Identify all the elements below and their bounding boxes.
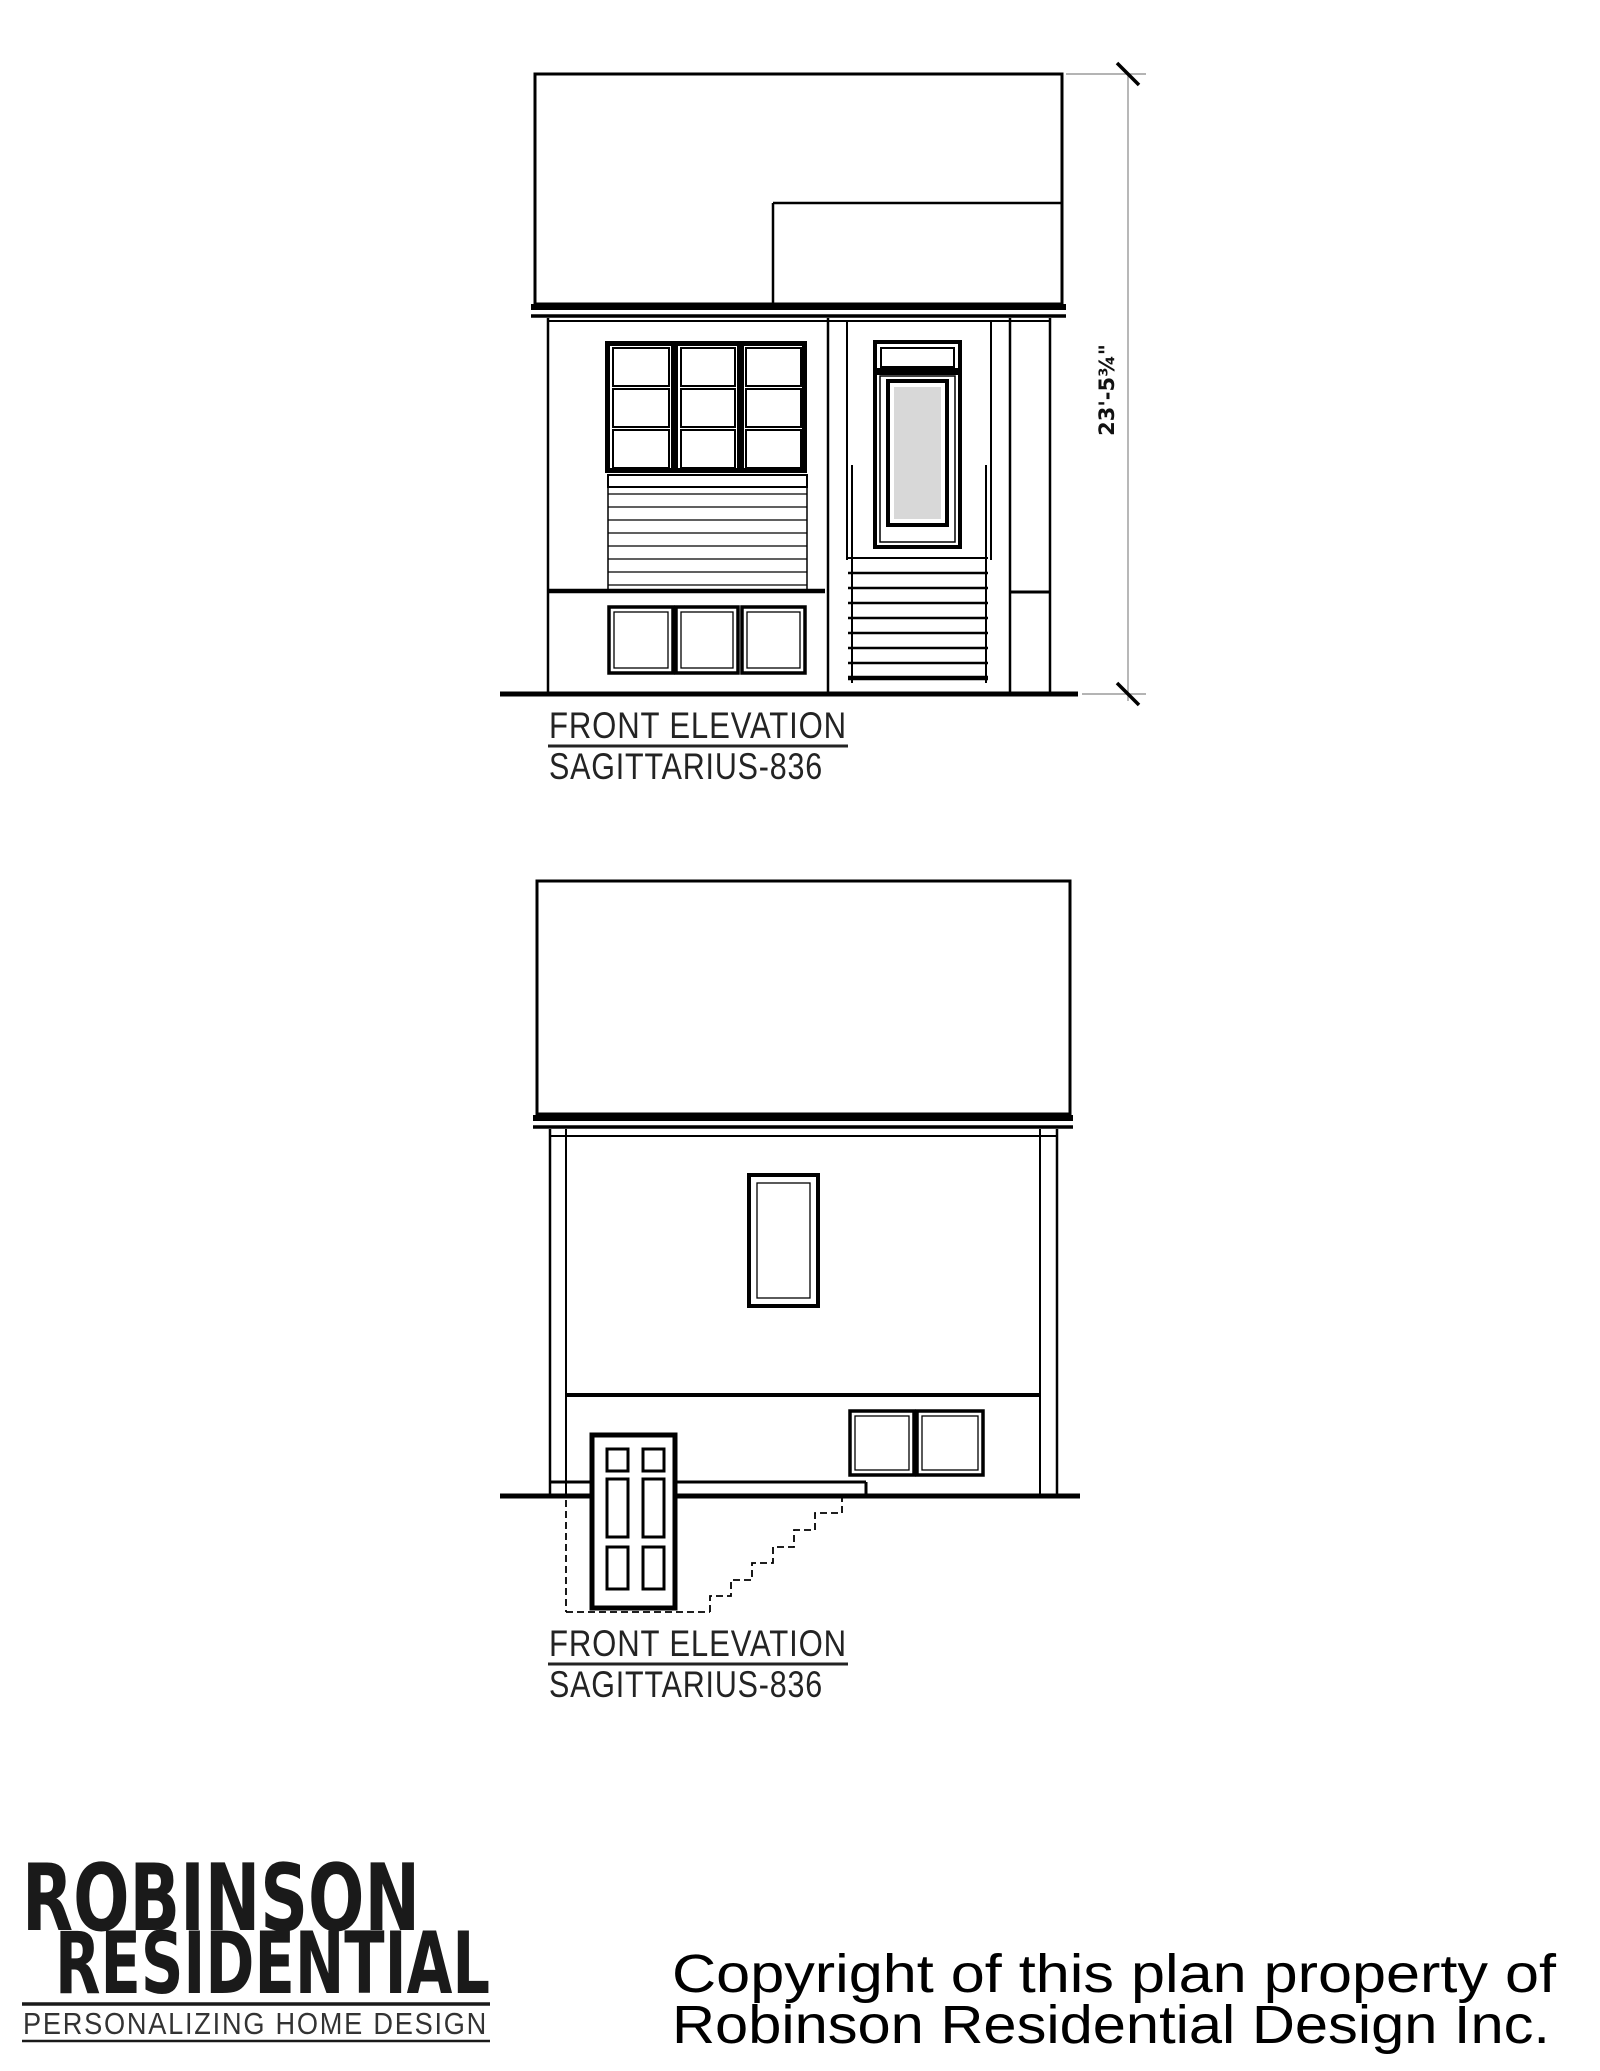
- bottom-elevation-title: FRONT ELEVATION: [549, 1623, 847, 1664]
- robinson-residential-logo: ROBINSON RESIDENTIAL PERSONALIZING HOME …: [22, 1844, 490, 2041]
- roof: [531, 74, 1066, 316]
- dimension-label: 23'-5¾": [1095, 344, 1119, 436]
- siding: [608, 475, 807, 590]
- main-window-grid: [608, 343, 805, 471]
- bottom-elevation: [500, 881, 1080, 1612]
- drawing-sheet: 23'-5¾" FRONT ELEVATION SAGITTARIUS-836: [0, 0, 1600, 2071]
- basement-door: [592, 1435, 675, 1608]
- entry-stairs: [848, 558, 988, 678]
- transom-window: [881, 348, 954, 367]
- door-glass: [894, 387, 941, 519]
- bottom-elevation-subtitle: SAGITTARIUS-836: [549, 1664, 823, 1705]
- elevation-drawing-svg: 23'-5¾" FRONT ELEVATION SAGITTARIUS-836: [0, 0, 1600, 2071]
- copyright-line2: Robinson Residential Design Inc.: [672, 1995, 1550, 2055]
- logo-line2: RESIDENTIAL: [55, 1914, 490, 2014]
- top-elevation-subtitle: SAGITTARIUS-836: [549, 746, 823, 787]
- entry-door: [875, 342, 960, 547]
- top-elevation: [500, 63, 1146, 705]
- top-elevation-title: FRONT ELEVATION: [549, 705, 847, 746]
- basement-window-pair: [850, 1411, 983, 1475]
- copyright-notice: Copyright of this plan property of Robin…: [672, 1944, 1557, 2055]
- logo-tagline: PERSONALIZING HOME DESIGN: [23, 2006, 488, 2041]
- basement-windows: [609, 607, 805, 673]
- upper-window: [749, 1175, 818, 1306]
- roof: [533, 881, 1073, 1127]
